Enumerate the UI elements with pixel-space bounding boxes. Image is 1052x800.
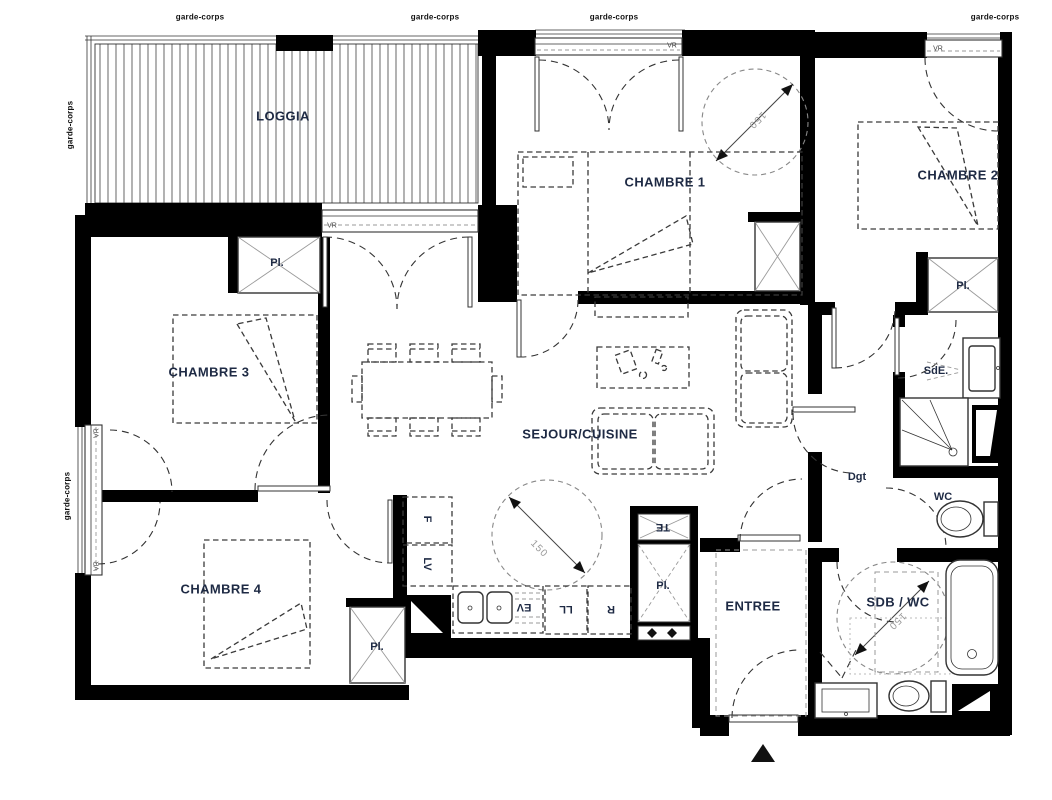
shutter-label: VR <box>933 46 943 53</box>
entrance-arrow <box>751 744 775 762</box>
wall <box>75 573 91 700</box>
door-leaf <box>388 500 392 563</box>
sofa-cushion <box>741 373 787 423</box>
wc-bowl <box>937 501 983 537</box>
window-swing <box>110 430 172 492</box>
door-leaf <box>535 57 539 131</box>
electrical-panel-label: TE <box>656 521 670 533</box>
wall <box>85 203 322 237</box>
door-swing <box>609 60 679 130</box>
chair <box>452 418 480 436</box>
wall <box>815 32 927 58</box>
chair <box>410 344 438 362</box>
window-chambre3-4 <box>85 425 102 575</box>
door-swing <box>925 58 998 131</box>
bed-throw <box>211 603 307 659</box>
dishwasher-label: LV <box>421 557 433 570</box>
wall <box>393 495 407 598</box>
fridge-label: F <box>421 516 433 523</box>
dining-set <box>352 344 502 436</box>
guardrail-label: garde-corps <box>411 13 459 22</box>
guardrail-label: garde-corps <box>971 13 1019 22</box>
room-label-chambre2: CHAMBRE 2 <box>918 168 999 183</box>
kitchen <box>403 497 631 640</box>
shutter-label: VR <box>94 428 101 438</box>
chair <box>452 344 480 362</box>
wc-tank <box>984 502 998 536</box>
door-leaf <box>895 318 899 375</box>
table-decor <box>615 350 637 374</box>
room-label-chambre3: CHAMBRE 3 <box>169 365 250 380</box>
door-fold <box>842 650 856 678</box>
room-label-dgt: Dgt <box>848 471 866 483</box>
door-swing <box>521 300 578 357</box>
wall <box>478 30 536 56</box>
pillow <box>523 157 573 187</box>
guardrail-label: garde-corps <box>63 472 72 520</box>
bed-chambre4 <box>204 540 310 668</box>
wall <box>482 55 496 207</box>
door-leaf <box>323 237 327 307</box>
closet-label: Pl. <box>370 641 383 653</box>
closet-label: Pl. <box>270 257 283 269</box>
room-label-sejour: SEJOUR/CUISINE <box>522 427 637 442</box>
door-leaf <box>468 237 472 307</box>
entree-zone <box>716 550 806 716</box>
washing-machine-label: LL <box>559 603 572 615</box>
guardrail-label: garde-corps <box>66 101 75 149</box>
dining-table <box>362 362 492 418</box>
room-label-sdb: SDB / WC <box>866 595 929 610</box>
door-leaf <box>517 300 521 357</box>
sink-bowl <box>487 592 512 623</box>
room-label-chambre4: CHAMBRE 4 <box>181 582 262 597</box>
wall <box>808 452 822 542</box>
chair <box>410 418 438 436</box>
sdb-clearance <box>875 572 938 672</box>
window-sejour <box>322 210 478 232</box>
sink-bowl <box>458 592 483 623</box>
room-label-chambre1: CHAMBRE 1 <box>625 175 706 190</box>
sofa-cushion <box>741 316 787 371</box>
bed-throw <box>588 216 693 273</box>
wall <box>578 291 808 304</box>
door-swing <box>740 479 802 541</box>
door-leaf <box>832 308 836 368</box>
room-label-loggia: LOGGIA <box>256 109 310 124</box>
door-leaf <box>738 535 800 541</box>
diameter <box>509 497 585 573</box>
meter-box <box>638 626 690 640</box>
wall <box>276 35 333 51</box>
wall <box>228 237 238 293</box>
door-swing <box>835 308 895 368</box>
wall <box>75 685 409 700</box>
wall <box>682 30 815 56</box>
door-swing <box>837 562 897 622</box>
sdb-wc-bowl <box>889 681 929 711</box>
bathrooms <box>815 338 1002 720</box>
door-swing <box>397 237 469 309</box>
window-swing <box>98 502 160 564</box>
wall <box>893 466 1003 478</box>
guardrail-label: garde-corps <box>590 13 638 22</box>
door-fold <box>820 652 842 678</box>
table-extension <box>352 376 362 402</box>
door-swing <box>325 237 397 309</box>
table-decor <box>662 366 667 371</box>
chair <box>368 418 396 436</box>
wall <box>748 212 802 222</box>
wall <box>916 252 928 312</box>
room-label-entree: ENTREE <box>725 599 780 614</box>
coffee-table <box>597 347 689 388</box>
window-chambre1 <box>535 38 682 55</box>
sdb-dotted-zone <box>850 618 950 674</box>
closet-label: Pl. <box>656 580 669 592</box>
table-extension <box>492 376 502 402</box>
door-swing <box>327 500 390 563</box>
living-furniture <box>592 297 792 474</box>
table-decor <box>652 349 663 364</box>
door-leaf <box>793 407 855 412</box>
turning-circle-sejour <box>492 480 602 590</box>
room-label-sde: SdE. <box>924 365 948 377</box>
door-leaf <box>679 57 683 131</box>
wall <box>75 215 91 427</box>
guardrail-label: garde-corps <box>176 13 224 22</box>
loggia-hatch <box>95 44 478 203</box>
wall <box>808 302 822 394</box>
sofa-cushion <box>655 414 708 469</box>
floor-plan: garde-corps garde-corps garde-corps gard… <box>0 0 1052 800</box>
bathtub <box>946 560 998 675</box>
shutter-label: VR <box>94 561 101 571</box>
shutter-label: VR <box>327 223 337 230</box>
wall <box>478 205 517 302</box>
door-swing <box>539 60 609 130</box>
wall <box>346 598 407 607</box>
sde-washbasin-bowl <box>969 346 995 391</box>
refrigerator-label: R <box>607 603 615 615</box>
entrance-door-swing <box>732 650 800 718</box>
sdb-wc-tank <box>931 681 946 712</box>
room-label-wc: WC <box>934 491 952 503</box>
shutter-label: VR <box>667 43 677 50</box>
wall <box>91 490 258 502</box>
sofa-cushion <box>598 414 653 469</box>
plan-drawing <box>0 0 1052 800</box>
chair <box>368 344 396 362</box>
sofa-2 <box>736 310 792 427</box>
sink-label: EV <box>517 601 532 613</box>
table-decor <box>640 372 647 379</box>
door-leaf <box>258 486 330 491</box>
closet-label: Pl. <box>956 280 969 292</box>
door-swing <box>793 413 853 473</box>
